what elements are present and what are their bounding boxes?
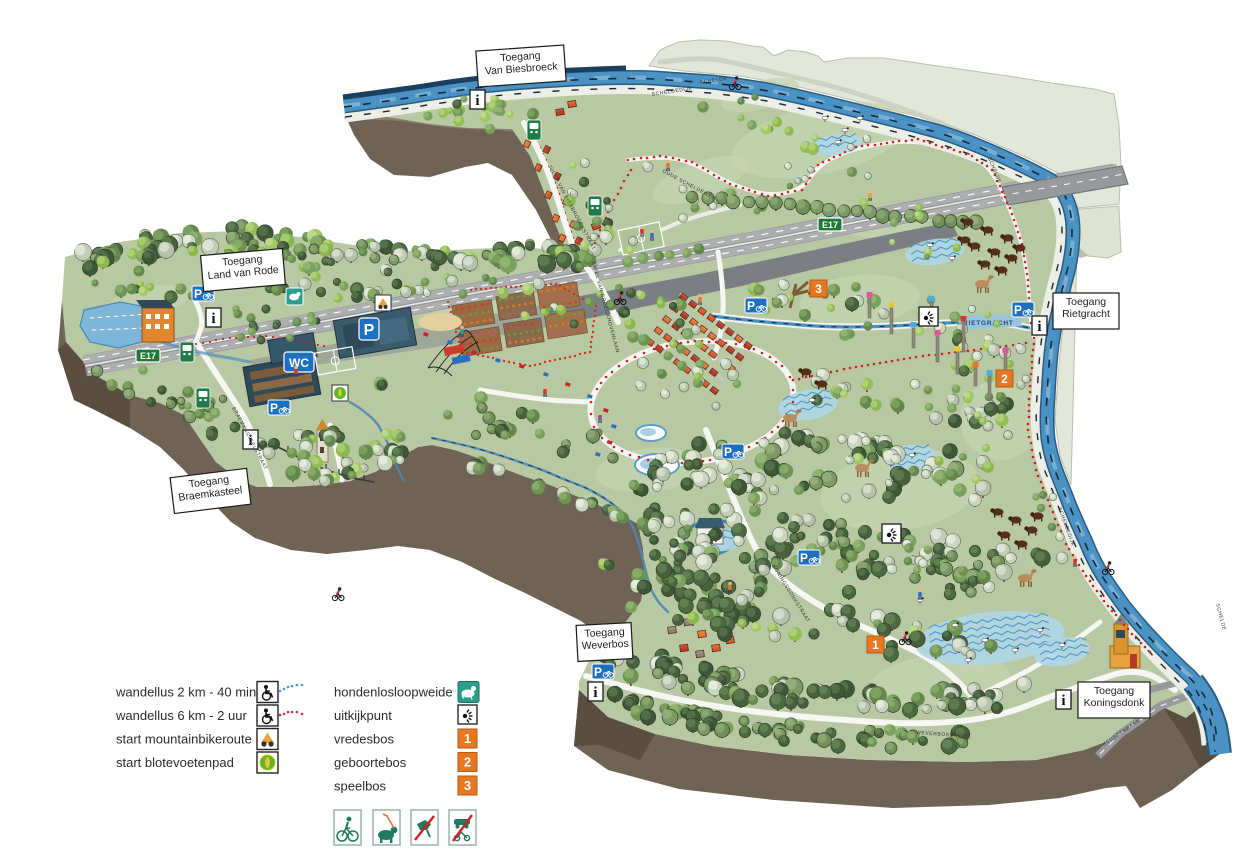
svg-text:P: P [270,401,278,415]
svg-text:Weverbos: Weverbos [581,638,629,652]
svg-text:start mountainbikeroute: start mountainbikeroute [116,732,252,747]
svg-text:P: P [1014,303,1022,317]
svg-text:1: 1 [464,731,471,746]
svg-text:i: i [211,311,215,327]
svg-text:2: 2 [1001,372,1008,386]
svg-text:Toegang: Toegang [1094,685,1134,697]
svg-text:wandellus 2 km - 40 min: wandellus 2 km - 40 min [115,685,256,700]
svg-text:2: 2 [464,755,471,770]
svg-text:P: P [194,287,202,301]
svg-text:RIETGRACHT: RIETGRACHT [963,320,1014,327]
svg-text:P: P [800,551,808,565]
svg-text:P: P [724,445,732,459]
svg-text:1: 1 [872,638,879,652]
svg-text:P: P [747,299,755,313]
svg-text:E17: E17 [140,351,156,361]
svg-text:i: i [1037,319,1041,335]
svg-text:wandellus 6 km - 2 uur: wandellus 6 km - 2 uur [115,708,247,723]
svg-text:Toegang: Toegang [1066,296,1106,308]
svg-text:WC: WC [289,356,309,370]
svg-text:speelbos: speelbos [334,779,387,794]
svg-text:Koningsdonk: Koningsdonk [1084,697,1145,709]
svg-text:3: 3 [464,778,471,793]
svg-text:P: P [594,665,602,679]
svg-text:i: i [1061,693,1065,709]
svg-text:E17: E17 [822,220,838,230]
svg-text:i: i [593,685,597,701]
svg-text:P: P [364,322,375,339]
svg-text:uitkijkpunt: uitkijkpunt [334,708,392,723]
svg-text:start blotevoetenpad: start blotevoetenpad [116,755,234,770]
svg-text:geboortebos: geboortebos [334,755,407,770]
svg-text:hondenlosloopweide: hondenlosloopweide [334,685,453,700]
svg-text:Rietgracht: Rietgracht [1062,308,1110,320]
svg-text:i: i [475,93,479,109]
svg-text:3: 3 [815,282,822,296]
svg-text:vredesbos: vredesbos [334,732,394,747]
